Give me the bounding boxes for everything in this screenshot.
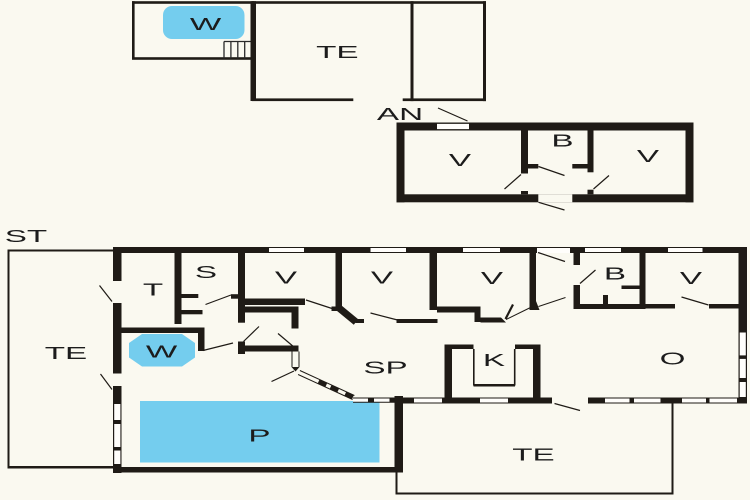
svg-text:W: W [146, 342, 177, 362]
svg-text:B: B [604, 264, 626, 284]
svg-text:V: V [275, 268, 298, 288]
svg-text:SP: SP [363, 358, 407, 378]
svg-text:V: V [637, 146, 660, 166]
svg-text:TE: TE [316, 42, 358, 62]
svg-text:P: P [248, 426, 270, 446]
svg-text:ST: ST [5, 226, 47, 246]
svg-text:K: K [483, 350, 506, 370]
svg-text:S: S [195, 262, 217, 282]
svg-text:TE: TE [512, 445, 554, 465]
svg-text:W: W [190, 14, 221, 34]
svg-text:B: B [551, 131, 573, 151]
svg-text:V: V [371, 268, 394, 288]
svg-text:AN: AN [377, 104, 423, 124]
svg-text:V: V [449, 150, 472, 170]
svg-text:V: V [680, 268, 703, 288]
svg-text:O: O [660, 349, 686, 369]
svg-text:T: T [143, 280, 163, 300]
svg-text:V: V [481, 268, 504, 288]
svg-text:TE: TE [45, 343, 87, 363]
